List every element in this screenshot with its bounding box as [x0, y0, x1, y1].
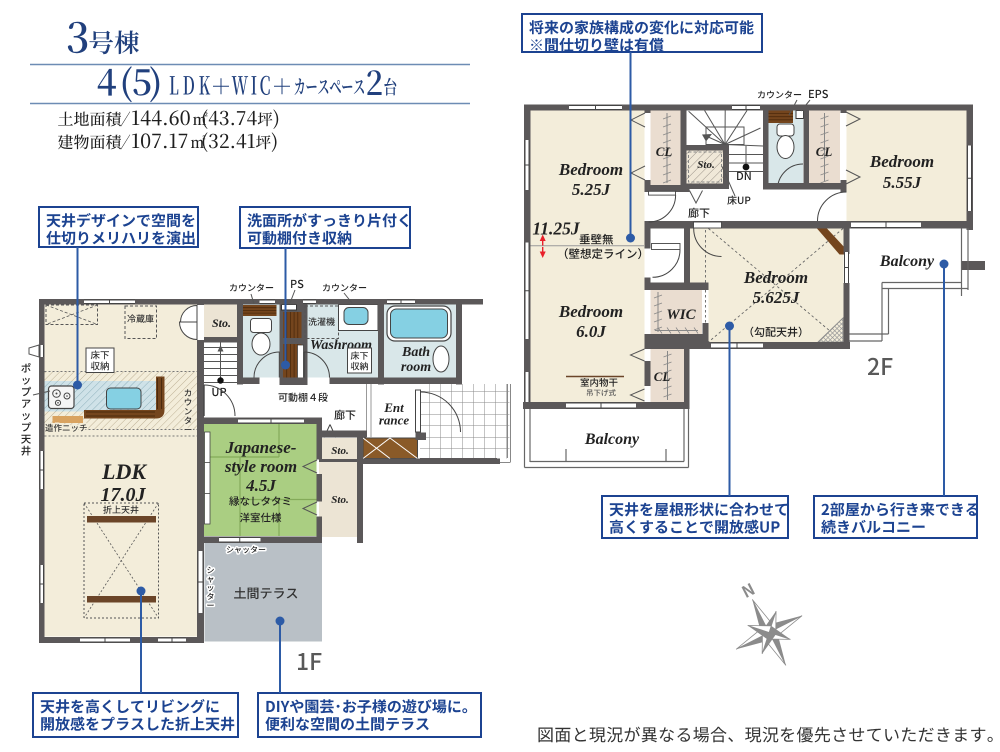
svg-text:11.25J: 11.25J	[532, 219, 580, 239]
svg-text:LDK: LDK	[101, 459, 147, 484]
svg-text:CL: CL	[656, 144, 673, 159]
svg-text:Japanese-: Japanese-	[225, 438, 297, 457]
svg-text:Sto.: Sto.	[697, 159, 714, 171]
svg-text:17.0J: 17.0J	[101, 484, 147, 506]
svg-text:Bedroom: Bedroom	[869, 152, 934, 171]
svg-text:room: room	[401, 360, 431, 375]
svg-text:Bath: Bath	[401, 345, 430, 360]
svg-text:Sto.: Sto.	[331, 494, 348, 506]
svg-text:Bedroom: Bedroom	[558, 160, 623, 179]
svg-text:5.625J: 5.625J	[753, 288, 800, 307]
svg-text:Sto.: Sto.	[331, 445, 348, 457]
svg-text:5.25J: 5.25J	[572, 180, 611, 199]
svg-text:CL: CL	[816, 144, 833, 159]
svg-text:rance: rance	[379, 413, 410, 428]
svg-text:6.0J: 6.0J	[576, 322, 606, 341]
svg-text:Balcony: Balcony	[584, 431, 640, 448]
svg-text:4.5J: 4.5J	[245, 476, 276, 495]
svg-text:5.55J: 5.55J	[883, 173, 922, 192]
svg-text:Balcony: Balcony	[879, 253, 935, 270]
svg-text:Sto.: Sto.	[212, 316, 231, 330]
svg-text:style room: style room	[224, 457, 297, 476]
svg-text:Bedroom: Bedroom	[558, 302, 623, 321]
svg-text:CL: CL	[654, 369, 671, 384]
svg-text:Bedroom: Bedroom	[743, 268, 808, 287]
svg-text:WIC: WIC	[666, 307, 696, 323]
